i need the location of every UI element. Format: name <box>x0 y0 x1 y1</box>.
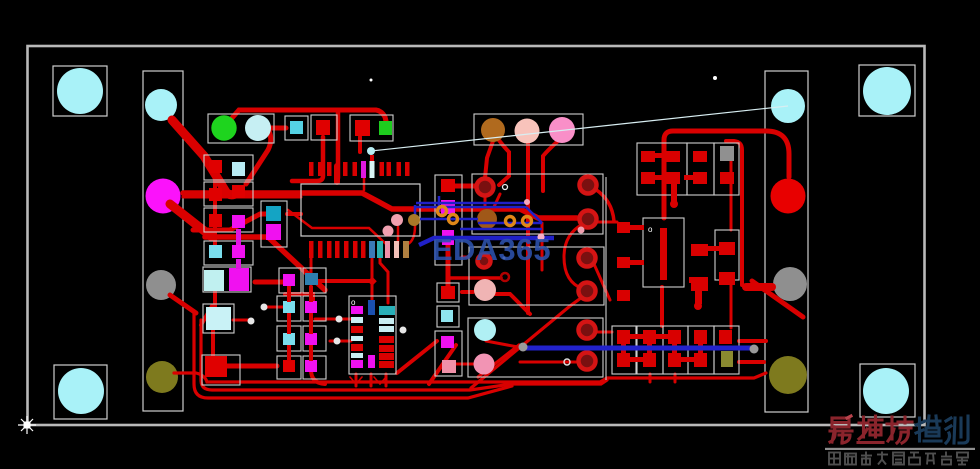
svg-text:o: o <box>648 225 653 234</box>
svg-text:o: o <box>351 298 356 307</box>
svg-text:EDA365: EDA365 <box>432 232 551 267</box>
